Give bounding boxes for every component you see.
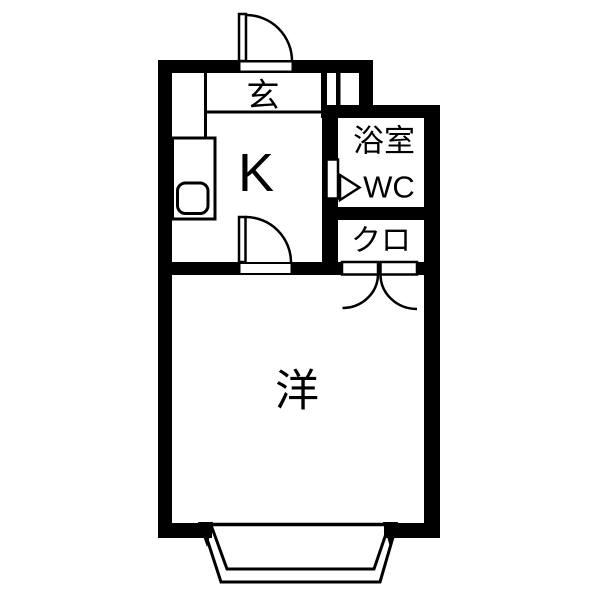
closet-door-leaf-left [342,262,378,275]
entrance-door-leaf [239,14,246,61]
wall-bath-top [321,105,440,118]
label-kitchen: K [238,143,274,203]
bath-door-leaf [327,160,339,199]
kitchen-sink [178,183,209,214]
wall-notch-divider [336,72,341,106]
label-genkan: 玄 [247,77,280,114]
label-bathroom: 浴室 [353,124,415,159]
kitchen-door-sill [240,263,292,274]
wall-left [158,60,172,538]
closet-door-leaf-right [381,262,418,275]
label-wc: WC [363,170,415,205]
floor-plan-canvas: 玄 K 浴室 WC クロ 洋 [0,0,600,600]
label-western-room: 洋 [275,367,319,416]
kitchen-door-leaf [239,217,246,262]
wall-bath-closet [322,207,440,220]
floor-plan: 玄 K 浴室 WC クロ 洋 [0,0,600,600]
wall-right [424,105,440,538]
label-closet: クロ [351,225,411,258]
wall-genkan-right [321,72,327,113]
entrance-door-sill [240,62,293,72]
background [0,0,600,600]
